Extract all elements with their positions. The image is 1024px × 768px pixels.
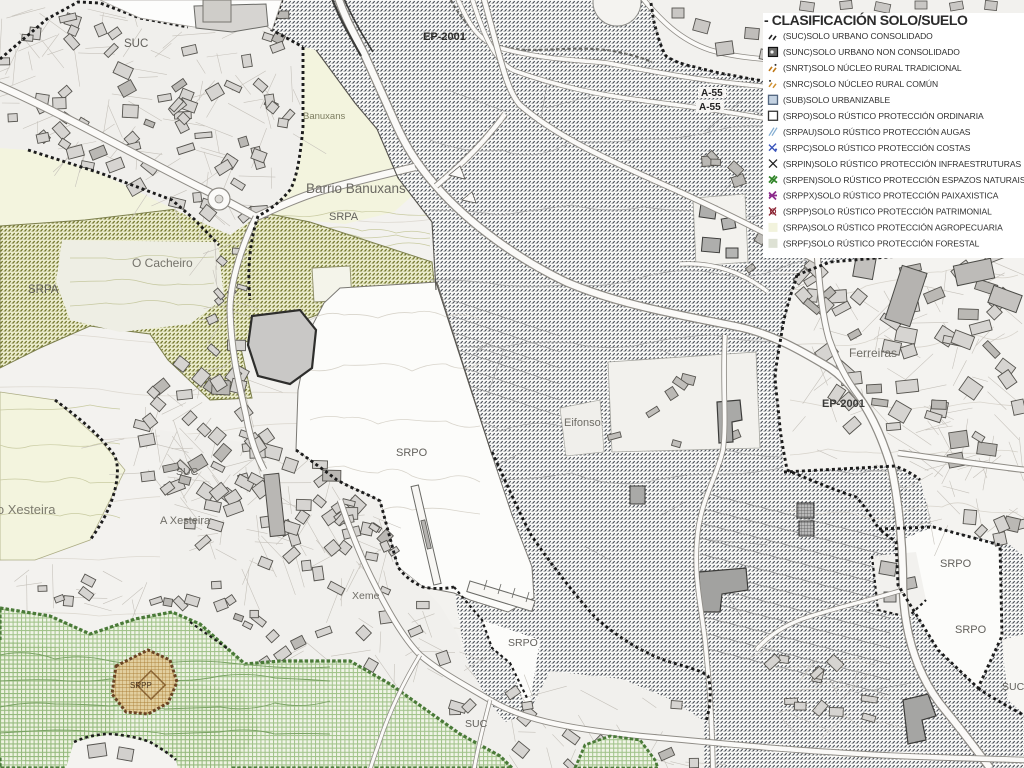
svg-text:(SRPAU)SOLO RÚSTICO PROTECCIÓN: (SRPAU)SOLO RÚSTICO PROTECCIÓN AUGAS [783,127,971,137]
svg-text:(SUNC)SOLO URBANO NON CONSOLID: (SUNC)SOLO URBANO NON CONSOLIDADO [783,47,960,57]
svg-text:EP-2001: EP-2001 [822,398,865,410]
svg-text:EP-2001: EP-2001 [423,31,466,43]
svg-text:SRPP: SRPP [130,681,152,690]
svg-text:Eifonso: Eifonso [564,417,601,429]
svg-text:SRPO: SRPO [955,624,987,636]
svg-text:SUC: SUC [124,38,148,50]
svg-text:O Cacheiro: O Cacheiro [132,256,193,270]
svg-text:(SRPF)SOLO RÚSTICO PROTECCIÓN: (SRPF)SOLO RÚSTICO PROTECCIÓN FORESTAL [783,239,980,249]
svg-text:(SNRC)SOLO NÚCLEO RURAL COMÚN: (SNRC)SOLO NÚCLEO RURAL COMÚN [783,79,938,89]
svg-text:SRPA: SRPA [329,211,359,223]
svg-text:- CLASIFICACIÓN SOLO/SUELO: - CLASIFICACIÓN SOLO/SUELO [764,11,968,28]
svg-text:(SUC)SOLO URBANO CONSOLIDADO: (SUC)SOLO URBANO CONSOLIDADO [783,31,933,41]
svg-text:(SRPO)SOLO RÚSTICO PROTECCIÓN: (SRPO)SOLO RÚSTICO PROTECCIÓN ORDINARIA [783,111,984,121]
svg-text:A-55: A-55 [699,102,721,113]
svg-text:Barrio Banuxans: Barrio Banuxans [306,181,406,196]
svg-text:(SRPC)SOLO RÚSTICO PROTECCIÓN: (SRPC)SOLO RÚSTICO PROTECCIÓN COSTAS [783,143,971,153]
svg-text:(SUB)SOLO URBANIZABLE: (SUB)SOLO URBANIZABLE [783,95,890,105]
svg-text:(SRPIN)SOLO RÚSTICO PROTECCIÓN: (SRPIN)SOLO RÚSTICO PROTECCIÓN INFRAESTR… [783,159,1021,169]
svg-text:SRPO: SRPO [396,447,428,459]
svg-text:(SRPA)SOLO RÚSTICO PROTECCIÓN: (SRPA)SOLO RÚSTICO PROTECCIÓN AGROPECUAR… [783,223,1003,233]
svg-text:SUC: SUC [176,466,199,478]
svg-text:A Xesteira: A Xesteira [160,515,211,527]
svg-text:A-55: A-55 [701,88,723,99]
svg-text:(SRPEN)SOLO RÚSTICO PROTECCIÓN: (SRPEN)SOLO RÚSTICO PROTECCIÓN ESPAZOS N… [783,175,1024,185]
svg-text:(SNRT)SOLO NÚCLEO RURAL TRADIC: (SNRT)SOLO NÚCLEO RURAL TRADICIONAL [783,63,962,73]
svg-text:io Xesteira: io Xesteira [0,502,56,517]
svg-text:SUC: SUC [465,718,488,730]
svg-text:(SRPPX)SOLO RÚSTICO PROTECCIÓN: (SRPPX)SOLO RÚSTICO PROTECCIÓN PAIXAXIST… [783,191,999,201]
svg-text:Ferreiras: Ferreiras [849,346,897,360]
svg-text:SRPO: SRPO [940,558,972,570]
svg-text:SUC: SUC [1002,681,1024,693]
svg-text:Banuxans: Banuxans [303,111,346,122]
svg-text:SRPA: SRPA [28,284,59,296]
svg-text:(SRPP)SOLO RÚSTICO PROTECCIÓN: (SRPP)SOLO RÚSTICO PROTECCIÓN PATRIMONIA… [783,207,992,217]
svg-text:Xeme: Xeme [352,590,380,602]
svg-text:SRPO: SRPO [508,637,538,649]
